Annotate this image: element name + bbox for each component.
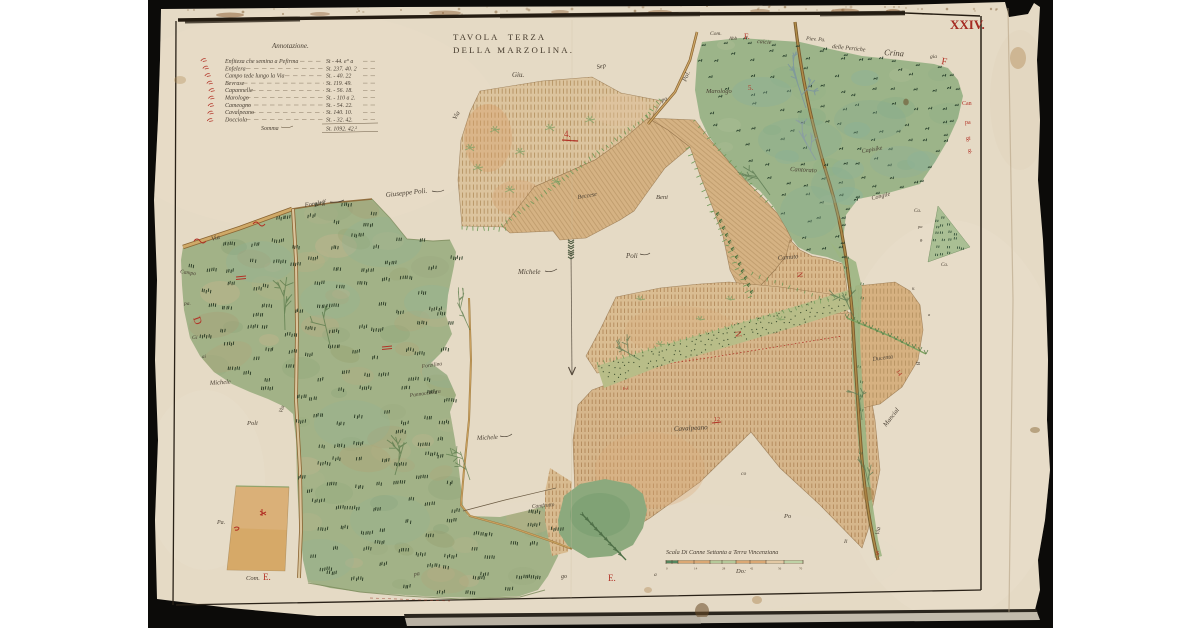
svg-text:St. 1092. 42.²: St. 1092. 42.²: [326, 126, 357, 133]
svg-text:28: 28: [722, 567, 726, 571]
svg-text:gi: gi: [966, 136, 971, 142]
svg-text:TAVOLA TERZA: TAVOLA TERZA: [453, 32, 546, 42]
svg-text:Abb: Abb: [728, 37, 738, 42]
svg-text:St. - 40. 22: St. - 40. 22: [326, 73, 351, 80]
svg-text:Michele: Michele: [517, 268, 541, 276]
svg-text:42: 42: [750, 567, 754, 571]
svg-text:Cameogno: Cameogno: [225, 103, 251, 109]
svg-text:Campo tede lungo la Via: Campo tede lungo la Via: [225, 74, 285, 80]
svg-text:Can: Can: [962, 101, 972, 107]
svg-text:Cantorato: Cantorato: [790, 166, 818, 174]
svg-text:Marologo: Marologo: [224, 96, 249, 102]
svg-text:Il: Il: [843, 539, 848, 545]
svg-text:Do:: Do:: [735, 568, 746, 575]
svg-text:pa: pa: [917, 224, 923, 229]
svg-text:Crina: Crina: [884, 47, 904, 58]
svg-text:14: 14: [694, 567, 698, 571]
svg-text:Michele: Michele: [476, 434, 498, 442]
svg-text:a: a: [654, 572, 657, 578]
svg-text:co: co: [741, 471, 746, 477]
svg-text:St. 140. 10.: St. 140. 10.: [326, 109, 352, 116]
svg-text:E.: E.: [263, 572, 271, 582]
svg-text:St. - 32. 42.: St. - 32. 42.: [326, 116, 353, 123]
svg-text:pa.: pa.: [183, 301, 191, 307]
svg-text:St - 44. e° a: St - 44. e° a: [326, 58, 353, 65]
svg-text:70: 70: [799, 567, 803, 571]
svg-text:Enfiteza che semina a Pefirma: Enfiteza che semina a Pefirma: [224, 58, 298, 65]
svg-text:g.: g.: [968, 148, 973, 154]
svg-text:ai: ai: [202, 355, 207, 360]
svg-text:Cavalpeano: Cavalpeano: [225, 110, 254, 116]
svg-text:Marologo: Marologo: [705, 88, 733, 95]
svg-text:St. 119. 49.: St. 119. 49.: [326, 80, 352, 87]
svg-text:F.: F.: [744, 32, 750, 41]
svg-text:N: N: [795, 271, 804, 278]
svg-text:St. 237. 40. 2: St. 237. 40. 2: [326, 65, 357, 72]
svg-text:Com.: Com.: [246, 575, 260, 582]
svg-text:caicie: caicie: [757, 39, 772, 46]
svg-text:56: 56: [778, 567, 782, 571]
svg-text:6.: 6.: [912, 286, 915, 291]
svg-text:S: S: [876, 551, 879, 557]
svg-text:Gi: Gi: [192, 335, 198, 341]
svg-text:XXIV.: XXIV.: [950, 17, 985, 32]
svg-text:Ca.: Ca.: [941, 263, 948, 268]
svg-text:Giu.: Giu.: [512, 71, 525, 79]
svg-text:St. - 110 a 2.: St. - 110 a 2.: [326, 96, 355, 102]
svg-text:Com.: Com.: [710, 31, 722, 37]
svg-text:Beni: Beni: [656, 194, 668, 201]
svg-text:St. - 56. 18.: St. - 56. 18.: [326, 88, 353, 94]
svg-text:Somma: Somma: [261, 126, 279, 132]
svg-text:E.: E.: [608, 573, 616, 583]
svg-text:Poli: Poli: [625, 252, 638, 260]
svg-text:DELLA MARZOLINA.: DELLA MARZOLINA.: [453, 45, 574, 55]
svg-text:go: go: [561, 574, 567, 580]
svg-text:pa: pa: [965, 120, 971, 126]
svg-text:5.: 5.: [748, 84, 754, 92]
svg-text:gia: gia: [930, 54, 937, 60]
svg-text:Po: Po: [783, 513, 792, 520]
svg-text:St. - 54. 22.: St. - 54. 22.: [326, 102, 353, 109]
svg-text:Docciola: Docciola: [224, 117, 247, 123]
svg-text:Scala Di Canne Settanta a Terr: Scala Di Canne Settanta a Terra Vincenzi…: [666, 549, 778, 556]
svg-text:Poli: Poli: [246, 420, 258, 427]
svg-text:Capannelle: Capannelle: [225, 88, 253, 94]
svg-text:pa: pa: [412, 571, 420, 578]
svg-text:Pa.: Pa.: [216, 520, 225, 526]
svg-text:Enfelera: Enfelera: [224, 65, 246, 72]
svg-text:Annotazione.: Annotazione.: [271, 42, 309, 50]
svg-text:Ca.: Ca.: [914, 209, 921, 214]
svg-text:Bevrase: Bevrase: [225, 81, 245, 87]
svg-text:4.: 4.: [564, 129, 571, 139]
svg-text:g.: g.: [920, 237, 923, 242]
